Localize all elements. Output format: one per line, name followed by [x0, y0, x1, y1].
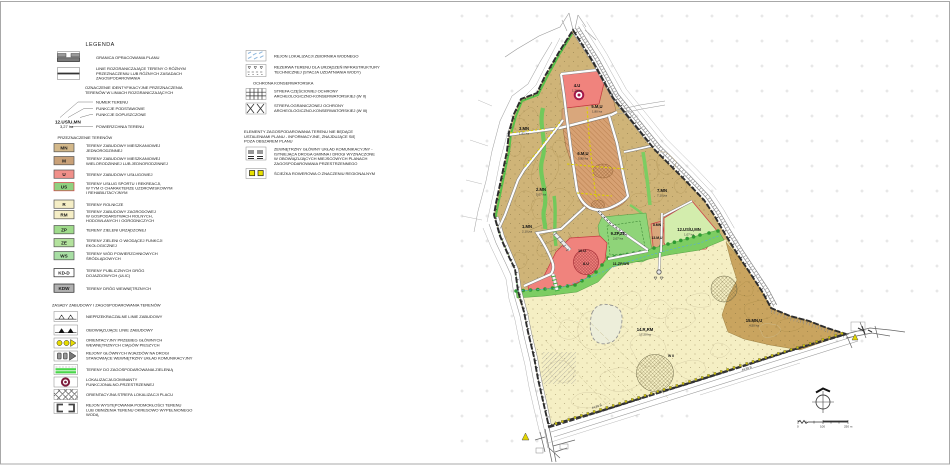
- svg-text:10.U: 10.U: [578, 249, 586, 253]
- svg-text:ORIENTACYJNA STREFA LOKALIZACJ: ORIENTACYJNA STREFA LOKALIZACJI PLACU: [86, 392, 173, 397]
- svg-text:JEDNORODZINNEJ: JEDNORODZINNEJ: [86, 148, 122, 153]
- svg-text:ZP: ZP: [61, 227, 67, 232]
- svg-text:ARCHEOLOGICZNO-KONSERWATORSKIE: ARCHEOLOGICZNO-KONSERWATORSKIEJ (W II): [274, 93, 367, 98]
- svg-text:ŚRÓDLĄDOWYCH: ŚRÓDLĄDOWYCH: [86, 256, 121, 261]
- svg-text:1,80 ha: 1,80 ha: [592, 110, 602, 114]
- svg-text:3,27 ha: 3,27 ha: [60, 124, 74, 129]
- svg-text:FUNKCJONALNO-PRZESTRZENNEJ: FUNKCJONALNO-PRZESTRZENNEJ: [86, 382, 154, 387]
- svg-text:TECHNICZNEJ (STACJA UZDATNIANI: TECHNICZNEJ (STACJA UZDATNIANIA WODY): [274, 69, 361, 74]
- svg-text:TERENY ZIELENI URZĄDZONEJ: TERENY ZIELENI URZĄDZONEJ: [86, 227, 146, 232]
- svg-text:EKOLOGICZNEJ: EKOLOGICZNEJ: [86, 243, 117, 248]
- svg-text:WEWNĘTRZNYCH CIĄGÓW PIESZYCH: WEWNĘTRZNYCH CIĄGÓW PIESZYCH: [86, 342, 160, 347]
- svg-text:MN: MN: [60, 145, 68, 150]
- svg-text:ŚCIEŻKA ROWEROWA O ZNACZENIU R: ŚCIEŻKA ROWEROWA O ZNACZENIU REGIONALNYM: [274, 171, 376, 176]
- svg-text:12.US/U,MN: 12.US/U,MN: [677, 227, 701, 232]
- svg-text:OCHRONA KONSERWATORSKA: OCHRONA KONSERWATORSKA: [253, 81, 314, 86]
- svg-text:ZE: ZE: [61, 240, 67, 245]
- svg-text:ZAGOSPODAROWANIA PRZESTRZENNEG: ZAGOSPODAROWANIA PRZESTRZENNEGO: [274, 161, 357, 166]
- svg-text:RM: RM: [60, 212, 67, 217]
- svg-text:15.MN,U: 15.MN,U: [746, 318, 763, 323]
- svg-text:9.ZP,ZE: 9.ZP,ZE: [611, 231, 626, 236]
- svg-text:ZAGOSPODAROWANIA: ZAGOSPODAROWANIA: [96, 76, 141, 81]
- svg-text:11.ZP,WS: 11.ZP,WS: [613, 262, 630, 266]
- svg-text:WIELORODZINNEJ LUB JEDNORODZIN: WIELORODZINNEJ LUB JEDNORODZINNEJ: [86, 161, 168, 166]
- svg-text:POZA OBSZAREM PLANU: POZA OBSZAREM PLANU: [244, 139, 293, 144]
- svg-text:TERENY DO ZAGOSPODAROWANIA ZIE: TERENY DO ZAGOSPODAROWANIA ZIELENIĄ: [86, 367, 173, 372]
- svg-text:5.M,U: 5.M,U: [591, 104, 602, 109]
- svg-text:M: M: [62, 158, 66, 163]
- svg-text:NIEPRZEKRACZALNE LINIE ZABUDOW: NIEPRZEKRACZALNE LINIE ZABUDOWY: [86, 314, 163, 319]
- svg-text:NUMER TERENU: NUMER TERENU: [96, 100, 128, 105]
- svg-text:KD-D: KD-D: [58, 270, 70, 275]
- svg-text:LUB OBNIŻENIA TERENU OKRESOWO: LUB OBNIŻENIA TERENU OKRESOWO WYPEŁNIONE…: [86, 407, 192, 412]
- svg-text:7.MN: 7.MN: [657, 188, 667, 193]
- svg-text:WODĄ: WODĄ: [86, 412, 99, 417]
- svg-text:8.U: 8.U: [583, 262, 589, 266]
- svg-text:GRANICA OPRACOWANIA PLANU: GRANICA OPRACOWANIA PLANU: [96, 55, 160, 60]
- svg-text:7,10 ha: 7,10 ha: [657, 194, 667, 198]
- svg-text:14.R,RM: 14.R,RM: [637, 327, 654, 332]
- svg-text:8.MN: 8.MN: [653, 223, 662, 227]
- svg-text:2.MN: 2.MN: [536, 187, 546, 192]
- svg-text:4.U: 4.U: [574, 83, 581, 88]
- svg-text:STANOWIĄCE WEWNĘTRZNY UKŁAD KO: STANOWIĄCE WEWNĘTRZNY UKŁAD KOMUNIKACYJN…: [86, 355, 193, 360]
- svg-text:W II: W II: [668, 354, 674, 358]
- svg-text:I REHABILITACYJNYM: I REHABILITACYJNYM: [86, 190, 128, 195]
- svg-text:3.MN: 3.MN: [519, 126, 529, 131]
- svg-text:TERENY ROLNICZE: TERENY ROLNICZE: [86, 202, 124, 207]
- svg-text:HODOWLANYCH I OGRODNICZYCH: HODOWLANYCH I OGRODNICZYCH: [86, 218, 154, 223]
- svg-text:100: 100: [820, 425, 825, 429]
- svg-text:PRZEZNACZENIE TERENÓW: PRZEZNACZENIE TERENÓW: [58, 135, 113, 140]
- svg-text:2,10 ha: 2,10 ha: [522, 230, 532, 234]
- svg-text:0: 0: [797, 425, 799, 429]
- svg-text:17,20 ha: 17,20 ha: [639, 333, 651, 337]
- svg-text:ZASADY ZABUDOWY I ZAGOSPODAROW: ZASADY ZABUDOWY I ZAGOSPODAROWANIA TEREN…: [52, 303, 161, 308]
- svg-text:TERENÓW W LINIACH ROZGRANICZAJ: TERENÓW W LINIACH ROZGRANICZAJĄCYCH: [85, 90, 173, 95]
- svg-text:4,50 ha: 4,50 ha: [749, 324, 759, 328]
- svg-text:DOJAZDOWYCH (ULIC): DOJAZDOWYCH (ULIC): [86, 273, 131, 278]
- svg-text:REJON LOKALIZACJI ZBIORNIKA WO: REJON LOKALIZACJI ZBIORNIKA WODNEGO: [274, 54, 359, 59]
- svg-text:2,07 ha: 2,07 ha: [613, 237, 623, 241]
- svg-text:OBOWIĄZUJĄCE LINIE ZABUDOWY: OBOWIĄZUJĄCE LINIE ZABUDOWY: [86, 328, 153, 333]
- svg-text:FUNKCJE DOPUSZCZONE: FUNKCJE DOPUSZCZONE: [96, 112, 146, 117]
- svg-text:ARCHEOLOGICZNO-KONSERWATORSKIE: ARCHEOLOGICZNO-KONSERWATORSKIEJ (W III): [274, 108, 368, 113]
- svg-text:6.M,U: 6.M,U: [577, 151, 588, 156]
- svg-text:1,85 ha: 1,85 ha: [519, 132, 529, 136]
- svg-text:250 m: 250 m: [844, 425, 853, 429]
- svg-text:TERENY ZABUDOWY USŁUGOWEJ: TERENY ZABUDOWY USŁUGOWEJ: [86, 172, 153, 177]
- svg-text:KDW: KDW: [59, 286, 71, 291]
- svg-text:5,07 ha: 5,07 ha: [536, 193, 546, 197]
- svg-text:1.MN: 1.MN: [522, 224, 532, 229]
- svg-text:TERENY DRÓG WEWNĘTRZNYCH: TERENY DRÓG WEWNĘTRZNYCH: [86, 286, 151, 291]
- svg-text:WS: WS: [60, 253, 67, 258]
- svg-text:5,80 ha: 5,80 ha: [578, 157, 588, 161]
- svg-text:1,07 ha: 1,07 ha: [684, 233, 694, 237]
- svg-text:LEGENDA: LEGENDA: [86, 42, 115, 48]
- svg-text:FUNKCJE PODSTAWOWE: FUNKCJE PODSTAWOWE: [96, 106, 145, 111]
- svg-text:13.M,U: 13.M,U: [652, 236, 663, 240]
- svg-text:US: US: [61, 184, 67, 189]
- svg-text:POWIERZCHNIA TERENU: POWIERZCHNIA TERENU: [96, 124, 144, 129]
- svg-text:1,20 ha: 1,20 ha: [572, 89, 582, 93]
